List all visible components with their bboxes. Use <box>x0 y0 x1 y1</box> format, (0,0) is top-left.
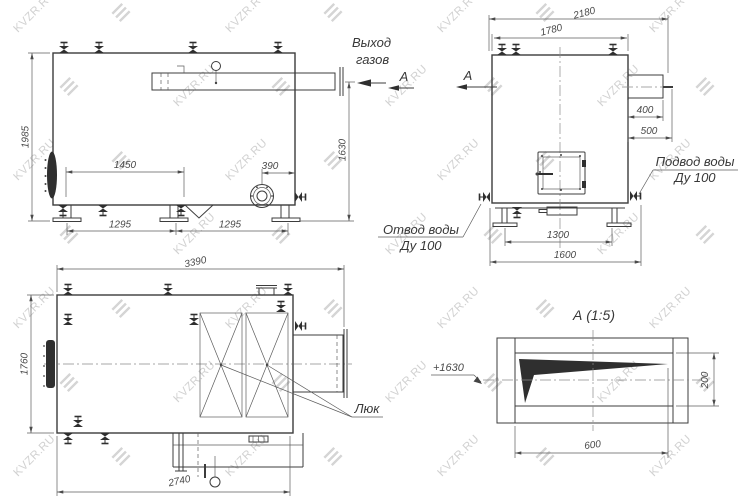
water-supply-label: Подвод воды Ду 100 <box>639 154 738 194</box>
dim-text: 2740 <box>166 474 191 490</box>
gas-outlet-label-line2: газов <box>356 52 389 67</box>
valve-icon <box>63 433 73 444</box>
front-view: 2180 1780 400 500 <box>378 5 738 266</box>
dim-text: 400 <box>637 105 654 116</box>
svg-text:Подвод воды: Подвод воды <box>656 154 735 169</box>
drawing-canvas: KVZR.RUKVZR.RUKVZR.RUKVZR.RUKVZR.RUKVZR.… <box>0 0 750 500</box>
boiler-body-side <box>53 53 295 205</box>
valve-icon <box>608 45 618 56</box>
valve-icon <box>188 43 198 54</box>
dim-1300: 1300 <box>505 228 612 246</box>
svg-text:Люк: Люк <box>354 401 381 416</box>
dim-text: 390 <box>262 161 279 172</box>
gas-duct-side <box>152 73 335 90</box>
gas-duct-plan <box>293 329 347 398</box>
detail-title: А (1:5) <box>572 307 615 323</box>
manhole-flange-side <box>45 152 58 199</box>
dim-text: 2180 <box>571 5 597 21</box>
side-valve-icon <box>295 192 306 202</box>
dim-text: 1450 <box>114 160 137 171</box>
dim-1295-right: 1295 <box>176 220 288 236</box>
section-letter: А <box>463 68 473 83</box>
dim-text: 1780 <box>539 22 564 38</box>
dim-text: 1300 <box>547 230 570 241</box>
dim-text: 1600 <box>554 250 577 261</box>
side-view: 1985 1450 390 1295 129 <box>21 35 415 235</box>
dim-text: 1985 <box>21 125 32 148</box>
gas-flow-arrow-icon <box>357 79 386 86</box>
dim-1450: 1450 <box>66 160 184 197</box>
valve-icon <box>283 285 293 296</box>
hatch-label: Люк <box>220 364 383 417</box>
valve-icon <box>189 315 199 326</box>
drain-valve-icon <box>58 205 68 216</box>
water-supply-valve-icon <box>630 191 641 201</box>
dim-1985: 1985 <box>21 53 51 221</box>
furnace-door <box>536 152 587 194</box>
valve-icon <box>295 321 306 331</box>
section-arrow-a: А <box>456 68 497 90</box>
boiler-drawing: 1985 1450 390 1295 129 <box>0 0 750 500</box>
dim-text: 1295 <box>219 220 242 231</box>
dim-600: 600 <box>515 368 668 458</box>
dim-3390: 3390 <box>57 255 344 327</box>
damper-wedge <box>519 359 668 403</box>
drain-valve-icon <box>98 205 108 216</box>
section-letter: А <box>399 69 409 84</box>
detail-view-a: А (1:5) 200 600 +1630 <box>431 307 719 458</box>
valve-icon <box>511 45 521 56</box>
svg-text:Отвод воды: Отвод воды <box>383 222 459 237</box>
water-return-label: Отвод воды Ду 100 <box>378 204 481 253</box>
elevation-mark: +1630 <box>431 362 482 384</box>
valve-icon <box>59 43 69 54</box>
valve-icon <box>276 302 286 313</box>
dim-text: 3390 <box>183 255 207 270</box>
bottom-structure-plan <box>173 433 303 487</box>
valve-icon <box>63 315 73 326</box>
valve-icon <box>94 43 104 54</box>
dim-text: 200 <box>700 371 711 389</box>
plan-view: 3390 1760 2740 Люк <box>20 255 384 496</box>
section-arrow-a: А <box>388 69 414 91</box>
valve-icon <box>497 45 507 56</box>
drain-valve-icon <box>512 207 522 218</box>
gas-duct-front <box>628 75 663 98</box>
valve-icon <box>100 433 110 444</box>
dim-390: 390 <box>262 161 295 184</box>
top-flange-plan <box>256 286 277 296</box>
dim-text: 1630 <box>338 138 349 161</box>
dim-1780: 1780 <box>492 22 628 51</box>
svg-text:Ду 100: Ду 100 <box>398 238 442 253</box>
gas-outlet-label-line1: Выход <box>352 35 391 50</box>
dim-text: 600 <box>584 439 602 452</box>
dim-text: 1760 <box>20 352 31 375</box>
dim-1630: 1630 <box>299 82 355 221</box>
valve-icon <box>163 285 173 296</box>
thermowell-icon <box>210 477 220 487</box>
water-return-valve-icon <box>480 192 491 202</box>
dim-2180: 2180 <box>489 5 668 73</box>
dim-text: 500 <box>641 126 658 137</box>
valve-icon <box>63 285 73 296</box>
burner-flange <box>251 185 274 208</box>
svg-text:Ду 100: Ду 100 <box>672 170 716 185</box>
valve-icon <box>73 417 83 428</box>
dim-200: 200 <box>676 353 719 406</box>
dim-text: 1295 <box>109 220 132 231</box>
svg-text:+1630: +1630 <box>433 362 465 374</box>
valve-icon <box>273 43 283 54</box>
